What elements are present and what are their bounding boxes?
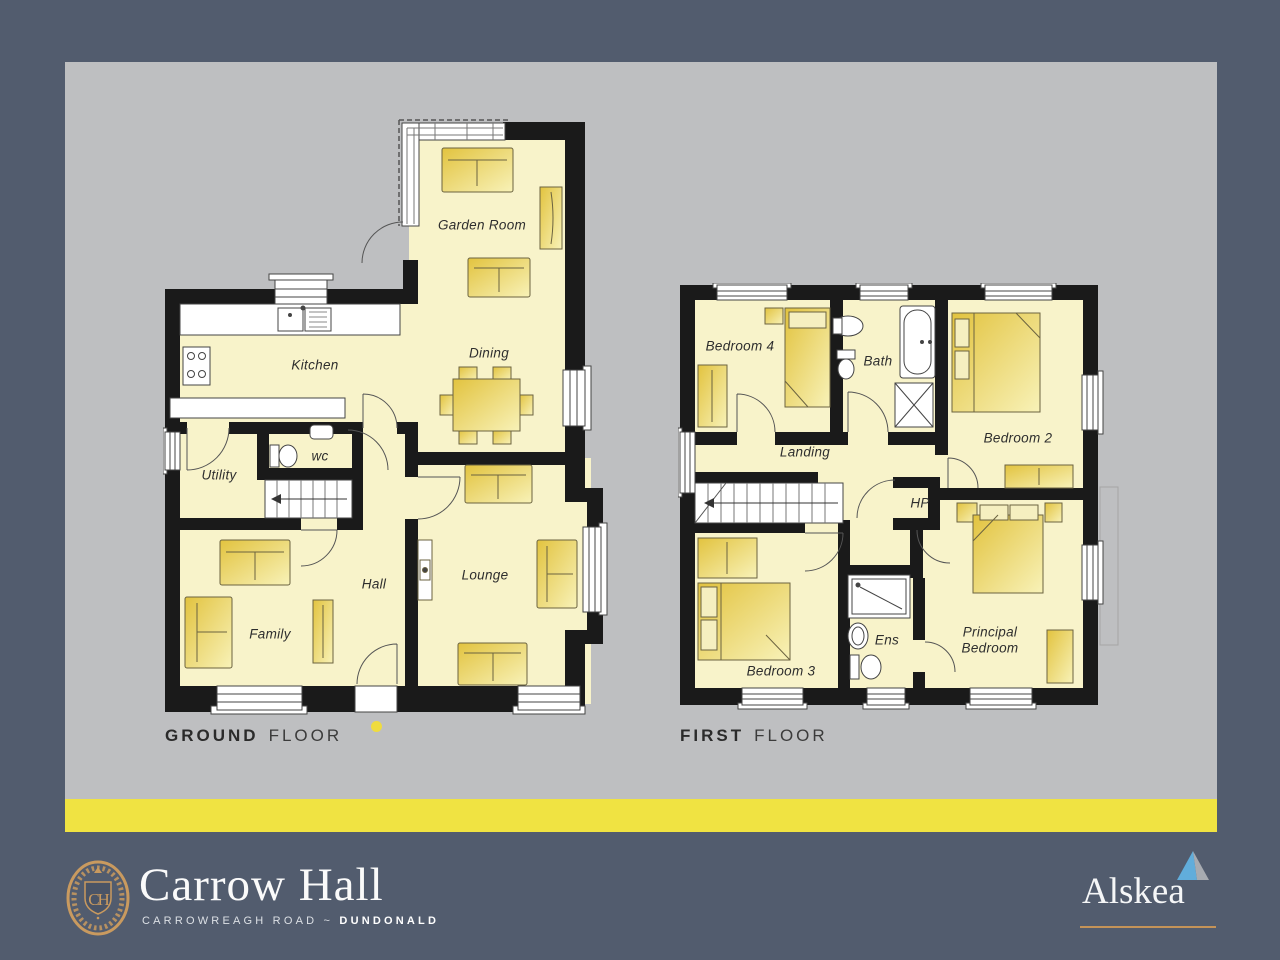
room-label-principal: Principal Bedroom — [942, 624, 1038, 655]
bath-window — [856, 283, 912, 300]
garden-room-sofa-1 — [442, 148, 513, 192]
room-label-garden-room: Garden Room — [438, 218, 526, 233]
first-caption-secondary: FLOOR — [754, 726, 828, 745]
room-label-ens: Ens — [875, 633, 899, 648]
kitchen-hob — [183, 347, 210, 385]
address-separator: ~ — [324, 915, 334, 927]
dining-window — [563, 366, 591, 430]
bathtub — [900, 306, 935, 378]
lounge-window — [513, 686, 585, 714]
lounge-fireplace — [418, 540, 432, 600]
bath-basin-unit — [833, 318, 842, 334]
room-label-bedroom3: Bedroom 3 — [747, 664, 816, 679]
front-door-marker-dot — [371, 721, 382, 732]
kitchen-window — [269, 274, 333, 306]
lounge-bay-window — [583, 523, 607, 615]
first-stairs — [695, 483, 843, 523]
bath-shower — [895, 383, 933, 427]
room-label-bath: Bath — [864, 354, 893, 369]
room-label-family: Family — [249, 627, 291, 642]
crest-monogram: CH — [88, 890, 109, 909]
development-name: Carrow Hall — [139, 858, 384, 912]
first-floor-plan: Bedroom 4 Bath Bedroom 2 Landing HP Bedr… — [678, 283, 1123, 711]
ens-toilet — [861, 655, 881, 679]
principal-window — [966, 688, 1036, 709]
bedroom3-bed — [698, 583, 790, 660]
utility-window — [163, 428, 180, 474]
first-floor-caption: FIRSTFLOOR — [680, 726, 828, 746]
garden-room-exterior-door — [362, 222, 403, 263]
ens-cistern — [850, 655, 859, 679]
ground-caption-primary: GROUND — [165, 726, 259, 745]
bath-cistern — [837, 350, 855, 359]
landing-window — [678, 428, 695, 497]
room-label-kitchen: Kitchen — [291, 358, 338, 373]
ground-floor-caption: GROUNDFLOOR — [165, 726, 342, 746]
address-town: DUNDONALD — [339, 915, 439, 927]
room-label-utility: Utility — [201, 468, 236, 483]
room-label-bedroom4: Bedroom 4 — [706, 339, 775, 354]
address-road: CARROWREAGH ROAD — [142, 915, 317, 927]
room-label-hall: Hall — [362, 577, 386, 592]
ground-stairs — [265, 480, 352, 518]
bedroom4-window — [713, 283, 791, 300]
principal-side-window — [1082, 541, 1103, 604]
ground-floor-plan: Garden Room Dining Kitchen Utility wc Ha… — [163, 112, 613, 732]
room-label-lounge: Lounge — [462, 568, 509, 583]
kitchen-island — [170, 398, 345, 418]
room-label-dining: Dining — [469, 346, 509, 361]
family-sofa-top — [220, 540, 290, 585]
agent-name: Alskea — [1082, 870, 1185, 913]
family-window — [211, 686, 307, 714]
lounge-sofa-right — [537, 540, 577, 608]
bedroom3-window — [738, 688, 807, 709]
bedroom2-top-window — [981, 283, 1056, 300]
ens-window — [863, 688, 909, 709]
wc-basin — [310, 425, 333, 439]
garden-room-sofa-2 — [468, 258, 530, 297]
crest-icon: CH — [66, 860, 130, 936]
bath-toilet — [838, 359, 854, 379]
ground-floor-drawing — [163, 112, 613, 732]
bedroom2-bed — [952, 313, 1040, 412]
ground-caption-secondary: FLOOR — [269, 726, 343, 745]
accent-stripe — [65, 799, 1217, 832]
room-label-hp: HP — [910, 496, 929, 511]
first-caption-primary: FIRST — [680, 726, 744, 745]
carrow-hall-crest: CH — [66, 860, 130, 936]
development-address: CARROWREAGH ROAD ~ DUNDONALD — [142, 915, 439, 927]
wc-toilet — [279, 445, 297, 467]
principal-wardrobe — [1047, 630, 1073, 683]
lounge-sofa-bottom — [458, 643, 527, 685]
garden-room-mirror — [540, 187, 562, 249]
front-door-threshold — [355, 686, 397, 712]
room-label-bedroom2: Bedroom 2 — [984, 431, 1053, 446]
room-label-wc: wc — [311, 449, 328, 464]
bedroom2-side-window — [1082, 371, 1103, 434]
lounge-sofa-top — [465, 465, 532, 503]
agent-underline — [1080, 926, 1216, 928]
kitchen-sink — [278, 306, 331, 331]
room-label-landing: Landing — [780, 445, 830, 460]
family-sofa-left — [185, 597, 232, 668]
floorplan-sheet: Garden Room Dining Kitchen Utility wc Ha… — [0, 0, 1280, 960]
ens-shower — [848, 575, 910, 618]
wc-cistern — [270, 445, 279, 467]
